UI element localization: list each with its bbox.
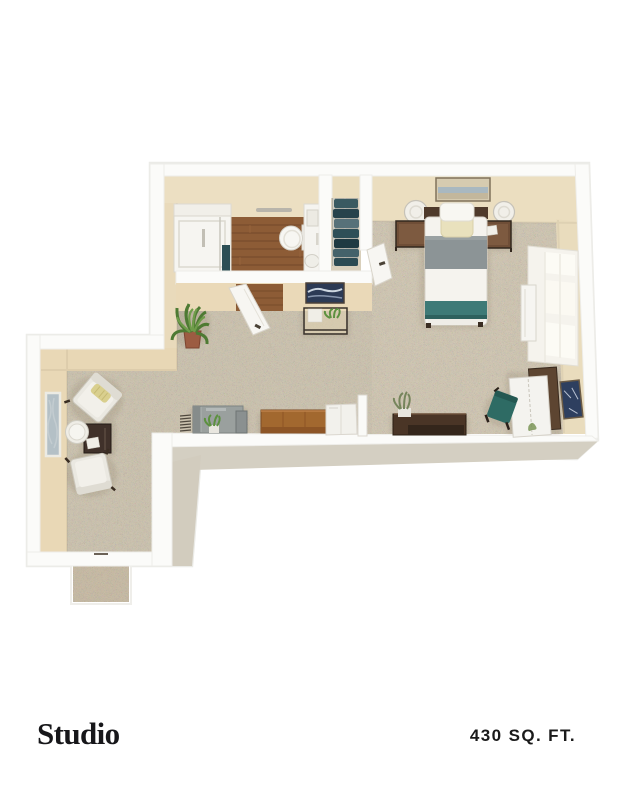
svg-text:Studio: Studio — [37, 716, 120, 751]
svg-text:430 SQ. FT.: 430 SQ. FT. — [470, 726, 576, 745]
